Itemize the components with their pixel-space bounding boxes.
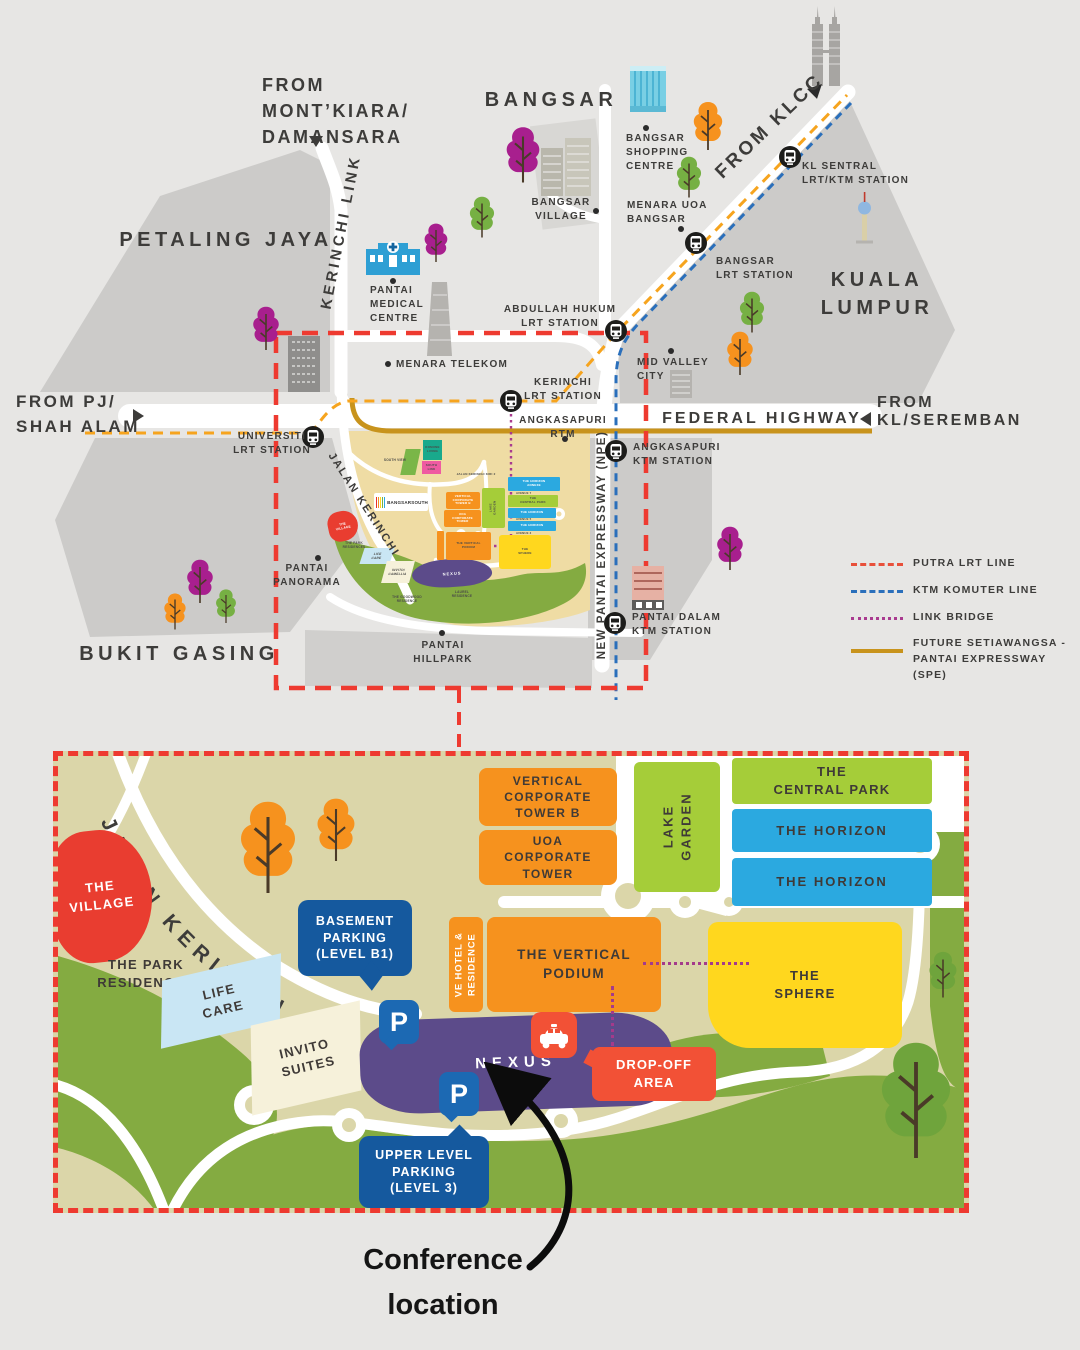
station-label-universiti: UNIVERSITI LRT STATION [233,430,311,458]
legend-swatch-putra [851,563,903,566]
tree-icon [241,802,295,893]
poi-pantai-medical: PANTAI MEDICAL CENTRE [370,284,424,326]
station-label-angkasapuri: ANGKASAPURI KTM STATION [633,441,721,469]
mini-uoa: UOA CORPORATE TOWER [444,510,481,527]
mini-laurel: LAUREL RESIDENCE [442,590,482,598]
direction-kl-seremban: KL/SEREMBAN [877,410,1022,432]
legend-ktm: KTM KOMUTER LINE [913,583,1038,599]
direction-pj: FROM PJ/ SHAH ALAM [16,390,140,439]
block-lake-garden: LAKE GARDEN [634,762,720,892]
block-the-sphere: THE SPHERE [708,922,902,1048]
station-label-bangsar: BANGSAR LRT STATION [716,255,794,283]
area-kuala-lumpur: KUALA LUMPUR [776,266,979,322]
poi-bangsar-village: BANGSAR VILLAGE [532,196,591,224]
station-icon-kerinchi [500,390,522,412]
universiti-building-icon [288,336,320,392]
tree-icon [470,197,494,238]
poi-menara-telekom: MENARA TELEKOM [396,358,508,372]
poi-bangsar-shopping: BANGSAR SHOPPING CENTRE [626,132,688,174]
hospital-icon [366,241,420,275]
legend-swatch-spe [851,649,903,653]
mini-horizon-annexe: THE HORIZON ANNEXE [508,477,560,491]
legend-putra: PUTRA LRT LINE [913,556,1016,572]
block-vertical-podium: THE VERTICAL PODIUM [487,917,661,1012]
mini-komune: KOMUNE LIVING [423,440,442,460]
road-npe: NEW PANTAI EXPRESSWAY (NPE) [594,431,610,660]
area-pantai-hillpark: PANTAI HILLPARK [413,639,472,667]
direction-map-poster: FROM MONT’KIARA/ DAMANSARA BANGSAR PETAL… [0,0,1080,1350]
tree-icon [425,224,448,262]
link-bridge-dotted-v [611,986,614,1046]
station-icon-kl-sentral [779,146,801,168]
area-mid-valley: MID VALLEY CITY [637,356,709,384]
mini-sphere: THE SPHERE [499,535,551,569]
block-horizon-2: THE HORIZON [732,858,932,906]
block-central-park: THE CENTRAL PARK [732,758,932,804]
mini-south-link: SOUTH LINK [422,461,441,474]
station-label-kl-sentral: KL SENTRAL LRT/KTM STATION [802,160,909,188]
pantai-dalam-building-icon [632,566,664,610]
south-arrow-icon [309,136,323,147]
block-vct-b: VERTICAL CORPORATE TOWER B [479,768,617,826]
block-ve-hotel: VE HOTEL & RESIDENCE [449,917,483,1012]
block-horizon-1: THE HORIZON [732,809,932,852]
legend-link-bridge: LINK BRIDGE [913,610,994,626]
legend-spe: FUTURE SETIAWANGSA - PANTAI EXPRESSWAY (… [913,636,1080,683]
basement-parking-callout: BASEMENT PARKING (LEVEL B1) [298,900,412,976]
link-bridge-dotted-h [643,962,749,965]
direction-mont-kiara: FROM MONT’KIARA/ DAMANSARA [262,72,410,150]
station-icon-bangsar [685,232,707,254]
taxi-icon [531,1012,577,1063]
mini-kiri-road-label: JALAN KERINCHI KIRI 2 [450,473,502,477]
mini-invito: INVITO/ CAMELLIA [381,561,415,583]
legend-swatch-ktm [851,590,903,593]
station-label-abdullah-hukum: ABDULLAH HUKUM LRT STATION [504,303,616,331]
poi-menara-uoa: MENARA UOA BANGSAR [627,199,708,227]
road-federal-highway: FEDERAL HIGHWAY [662,408,862,430]
mini-south-view-label: SOUTH VIEW [378,458,412,462]
mini-lake-garden: LAKE GARDEN [482,488,505,528]
east-arrow-icon [133,409,144,423]
mini-horizon-2: THE HORIZON [508,521,556,531]
station-label-pantai-dalam: PANTAI DALAM KTM STATION [632,611,721,639]
tree-icon [318,799,355,861]
mini-central-park: THE CENTRAL PARK [508,495,558,507]
logo-text: BANGSARSOUTH [387,500,428,505]
mini-goodwood: THE GOODWOOD RESIDENCE [382,595,432,603]
area-bangsar: BANGSAR [485,86,618,114]
station-label-kerinchi: KERINCHI LRT STATION [524,376,602,404]
parking-icon-basement: P [379,1000,419,1044]
area-petaling-jaya: PETALING JAYA [119,226,332,254]
area-bukit-gasing: BUKIT GASING [79,640,279,668]
menara-telekom-icon [427,282,452,356]
block-uoa-tower: UOA CORPORATE TOWER [479,830,617,885]
legend-swatch-link-bridge [851,617,903,620]
tree-icon [694,102,722,150]
conference-location-note: Conference location [363,1238,523,1328]
mini-ve-hotel [437,531,444,560]
area-pantai-panorama: PANTAI PANORAMA [273,562,341,590]
mini-podium: THE VERTICAL PODIUM [446,532,491,560]
bangsar-south-logo: BANGSARSOUTH [374,493,428,511]
mini-vct-b: VERTICAL CORPORATE TOWER B [446,492,480,509]
bangsar-shopping-centre-icon [630,66,666,112]
tree-icon [717,527,743,570]
